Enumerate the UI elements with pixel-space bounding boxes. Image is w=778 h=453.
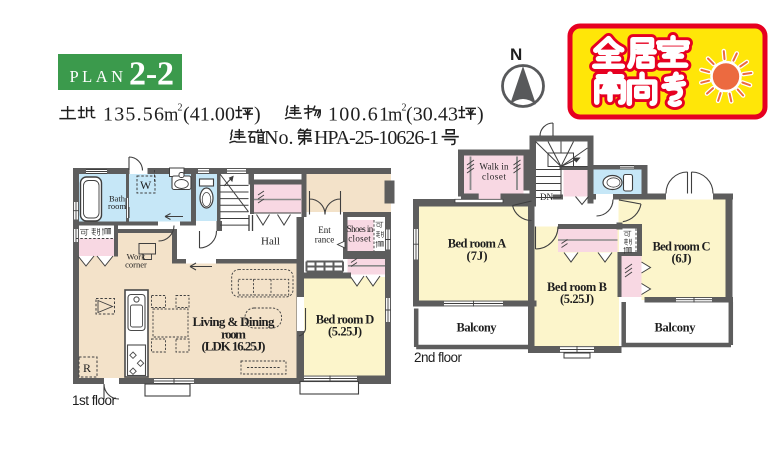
svg-text:Balcony: Balcony: [655, 321, 697, 335]
svg-text:corner: corner: [125, 260, 147, 270]
svg-text:PLAN: PLAN: [70, 67, 125, 86]
svg-text:closet: closet: [348, 234, 371, 244]
svg-text:2: 2: [178, 103, 183, 114]
svg-text:2nd floor: 2nd floor: [414, 350, 463, 365]
svg-text:closet: closet: [482, 172, 506, 182]
svg-text:Walk in: Walk in: [480, 162, 510, 172]
svg-text:rance: rance: [315, 235, 334, 245]
svg-text:(7J): (7J): [467, 249, 488, 263]
svg-text:100.61: 100.61: [328, 104, 389, 126]
svg-text:2-2: 2-2: [129, 56, 174, 93]
svg-text:N: N: [510, 45, 522, 64]
svg-text:(5.25J): (5.25J): [328, 325, 362, 339]
svg-text:Ent: Ent: [318, 225, 331, 235]
svg-text:(30.43: (30.43: [406, 104, 458, 126]
svg-text:room: room: [108, 201, 126, 211]
svg-text:): ): [254, 104, 261, 126]
svg-text:Hall: Hall: [261, 236, 280, 248]
svg-text:1st floor: 1st floor: [72, 393, 117, 408]
svg-text:(LDK 16.25J): (LDK 16.25J): [202, 339, 266, 354]
svg-text:W: W: [140, 178, 152, 192]
svg-text:HPA-25-10626-1: HPA-25-10626-1: [314, 127, 439, 149]
svg-text:Balcony: Balcony: [457, 321, 498, 335]
svg-text:135.56: 135.56: [103, 104, 164, 126]
svg-text:R: R: [83, 361, 91, 375]
svg-text:(5.25J): (5.25J): [560, 292, 594, 306]
svg-text:): ): [477, 104, 484, 126]
svg-text:(41.00: (41.00: [183, 104, 235, 126]
svg-text:(6J): (6J): [672, 252, 692, 266]
svg-text:Shoes in: Shoes in: [347, 224, 374, 234]
svg-text:No.: No.: [264, 127, 293, 149]
